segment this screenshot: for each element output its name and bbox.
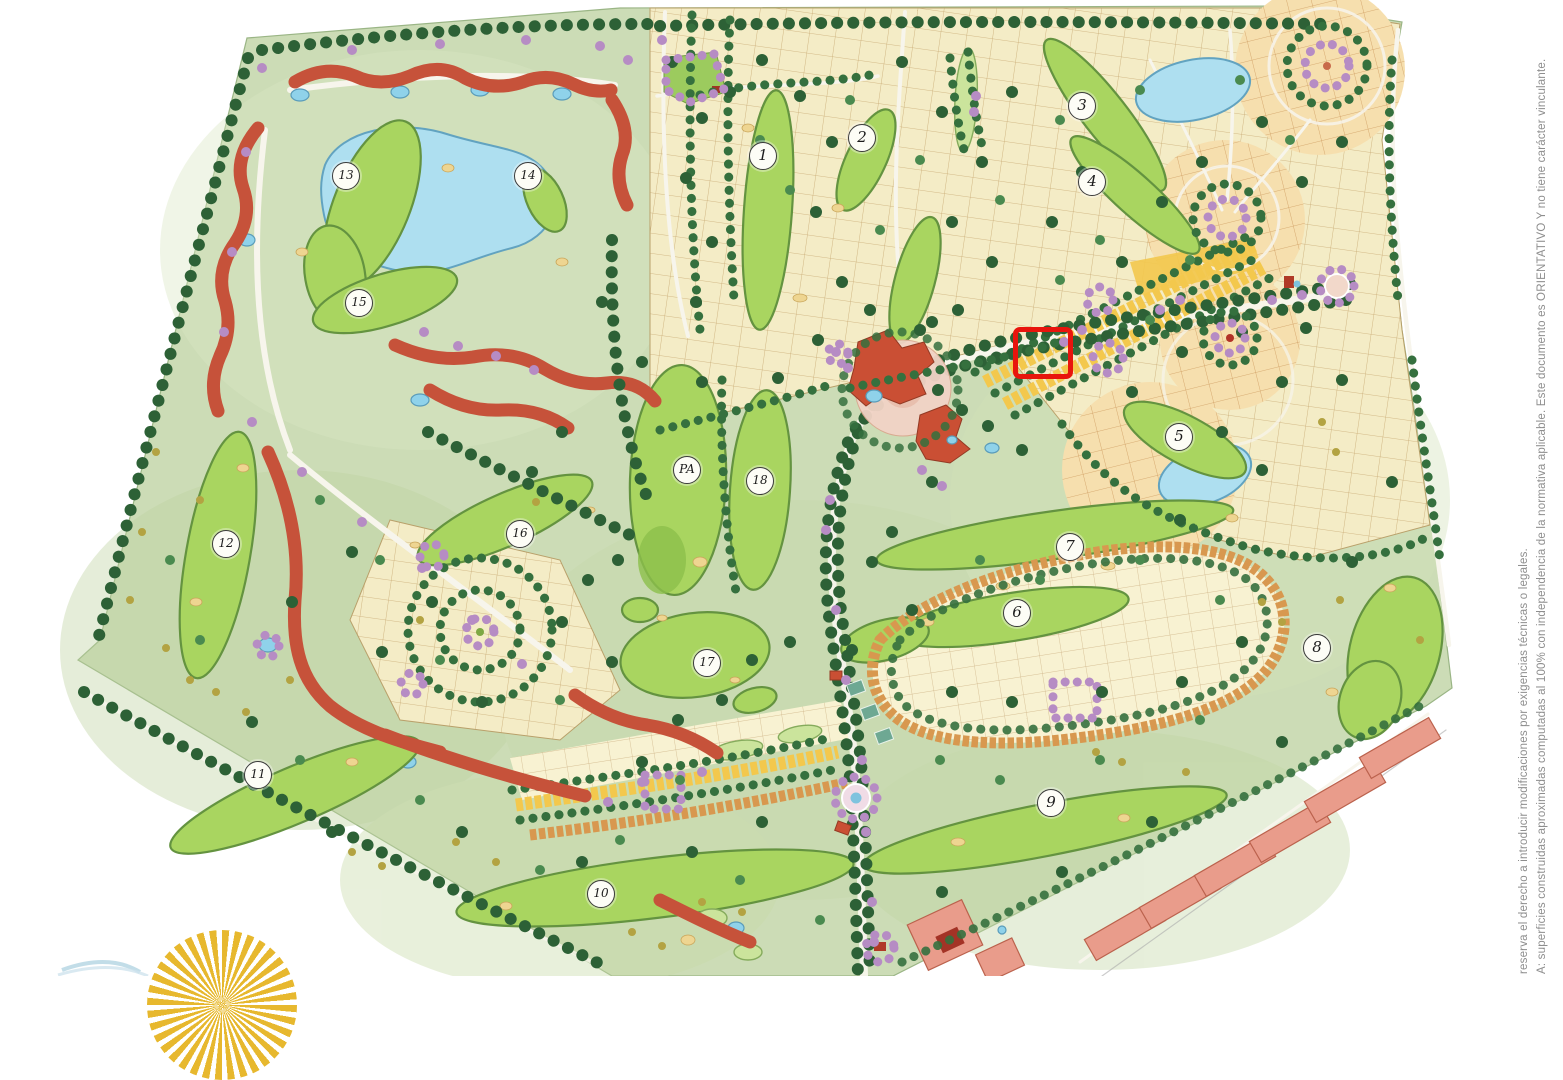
hole-marker-14: 14 — [514, 162, 542, 190]
hole-marker-10: 10 — [587, 880, 615, 908]
hole-marker-12: 12 — [212, 530, 240, 558]
hole-marker-9: 9 — [1037, 789, 1065, 817]
sun-logo-icon — [147, 930, 297, 1080]
hole-marker-13: 13 — [332, 162, 360, 190]
site-plan-illustration — [0, 0, 1563, 976]
hole-marker-11: 11 — [244, 761, 272, 789]
hole-marker-18: 18 — [746, 467, 774, 495]
entrance-plaza — [1325, 274, 1349, 298]
hole-marker-16: 16 — [506, 520, 534, 548]
hole-marker-PA: PA — [673, 456, 701, 484]
logo-swoosh — [58, 962, 148, 976]
hole-marker-2: 2 — [848, 124, 876, 152]
hole-marker-3: 3 — [1068, 92, 1096, 120]
disclaimer-line-2: reserva el derecho a introducir modifica… — [1518, 0, 1530, 974]
hole-marker-17: 17 — [693, 649, 721, 677]
hole-marker-4: 4 — [1078, 168, 1106, 196]
highlight-box — [1013, 327, 1073, 379]
hole-marker-6: 6 — [1003, 599, 1031, 627]
hole-marker-5: 5 — [1165, 423, 1193, 451]
hole-marker-15: 15 — [345, 289, 373, 317]
hole-marker-7: 7 — [1056, 533, 1084, 561]
disclaimer-line-1: A: superficies construidas aproximadas c… — [1536, 0, 1548, 974]
resort-master-plan-map: 123456789101112131415161718PA A: superfi… — [0, 0, 1563, 976]
hole-marker-1: 1 — [749, 142, 777, 170]
hole-marker-8: 8 — [1303, 634, 1331, 662]
